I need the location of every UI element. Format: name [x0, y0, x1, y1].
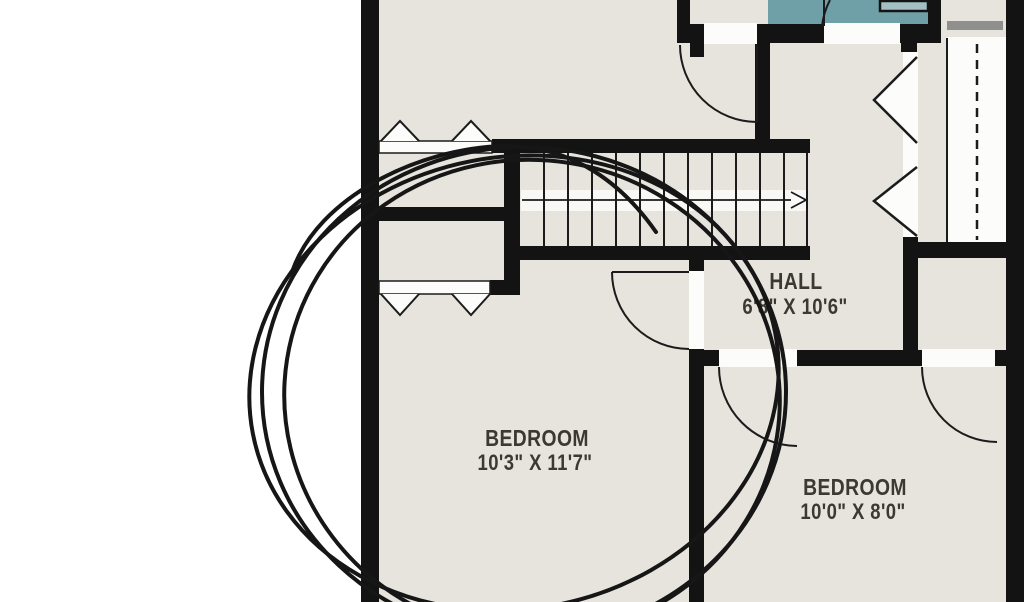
gray-bulkhead-strip — [947, 21, 1003, 30]
wall-exterior-right — [1006, 0, 1024, 602]
wall-stair-bottom — [514, 246, 810, 260]
room-label-hall: HALL — [769, 270, 822, 295]
floorplan-drawing: HALL 6'8" X 10'6" BEDROOM 10'3" X 11'7" … — [0, 0, 1024, 602]
door-opening-bathroom — [824, 23, 900, 44]
wall-closet-bottom — [916, 242, 1008, 258]
room-dims-bedroom-2: 10'0" X 8'0" — [800, 501, 905, 525]
room-label-bedroom-2: BEDROOM — [803, 476, 907, 501]
wall-bay-middle — [361, 207, 520, 221]
wall-bathroom-right — [928, 0, 941, 26]
wall-bay-foot — [490, 280, 520, 295]
bathroom-fixture — [880, 1, 928, 11]
room-dims-bedroom-1: 10'3" X 11'7" — [478, 452, 593, 476]
wall-stub-closet — [901, 40, 917, 52]
floorplan-screenshot: HALL 6'8" X 10'6" BEDROOM 10'3" X 11'7" … — [0, 0, 1024, 602]
wall-stub-left — [690, 43, 704, 57]
door-opening-closet — [922, 349, 995, 367]
door-opening-cupboard — [704, 23, 757, 44]
wall-exterior-left — [361, 0, 379, 602]
room-label-bedroom-1: BEDROOM — [485, 427, 589, 452]
door-opening-bedroom-1 — [689, 271, 704, 349]
wall-cupboard-left — [677, 0, 690, 30]
window-bay-bottom — [379, 281, 490, 294]
wall-hall-closet — [903, 237, 918, 366]
